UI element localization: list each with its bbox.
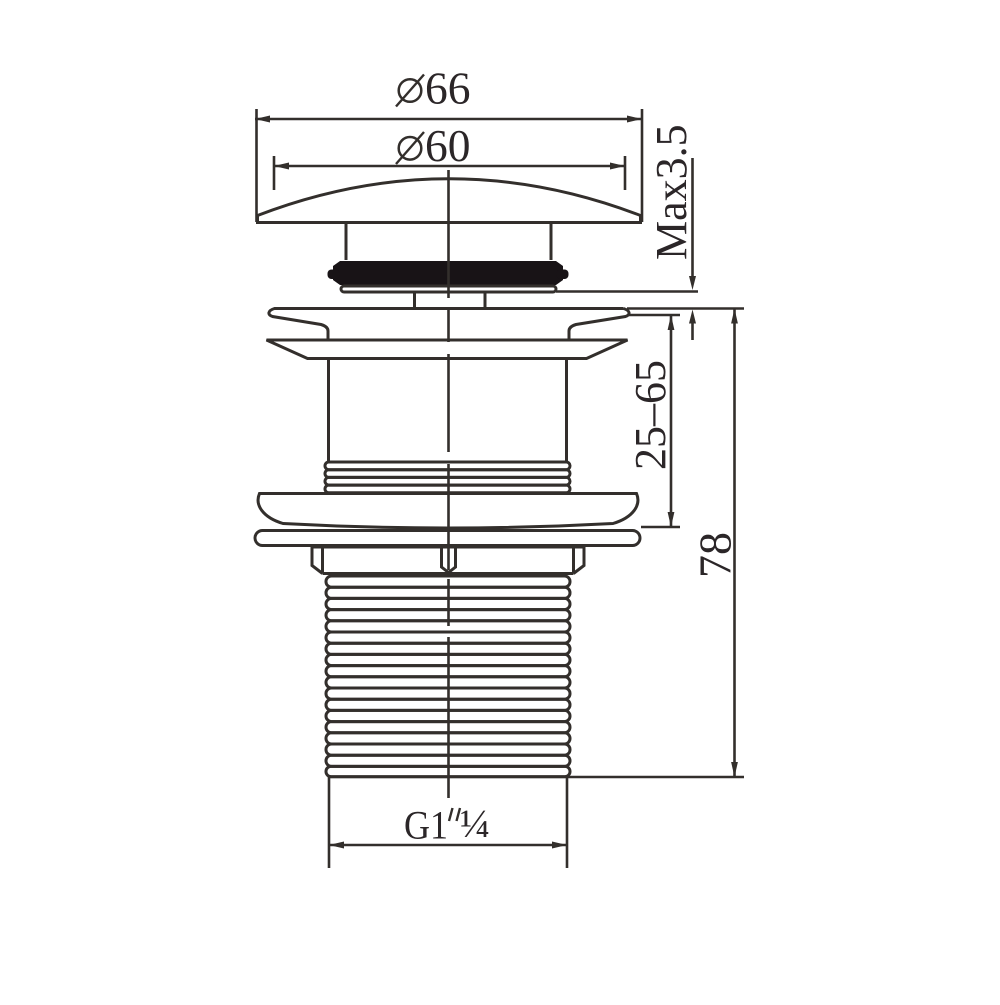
svg-text:60: 60 [425,120,471,171]
svg-text:Max3.5: Max3.5 [647,124,696,260]
svg-text:25–65: 25–65 [626,360,675,470]
svg-text:¼: ¼ [460,801,490,846]
svg-text:66: 66 [425,63,471,114]
svg-text:78: 78 [690,532,741,578]
svg-text:G1: G1 [404,803,448,848]
